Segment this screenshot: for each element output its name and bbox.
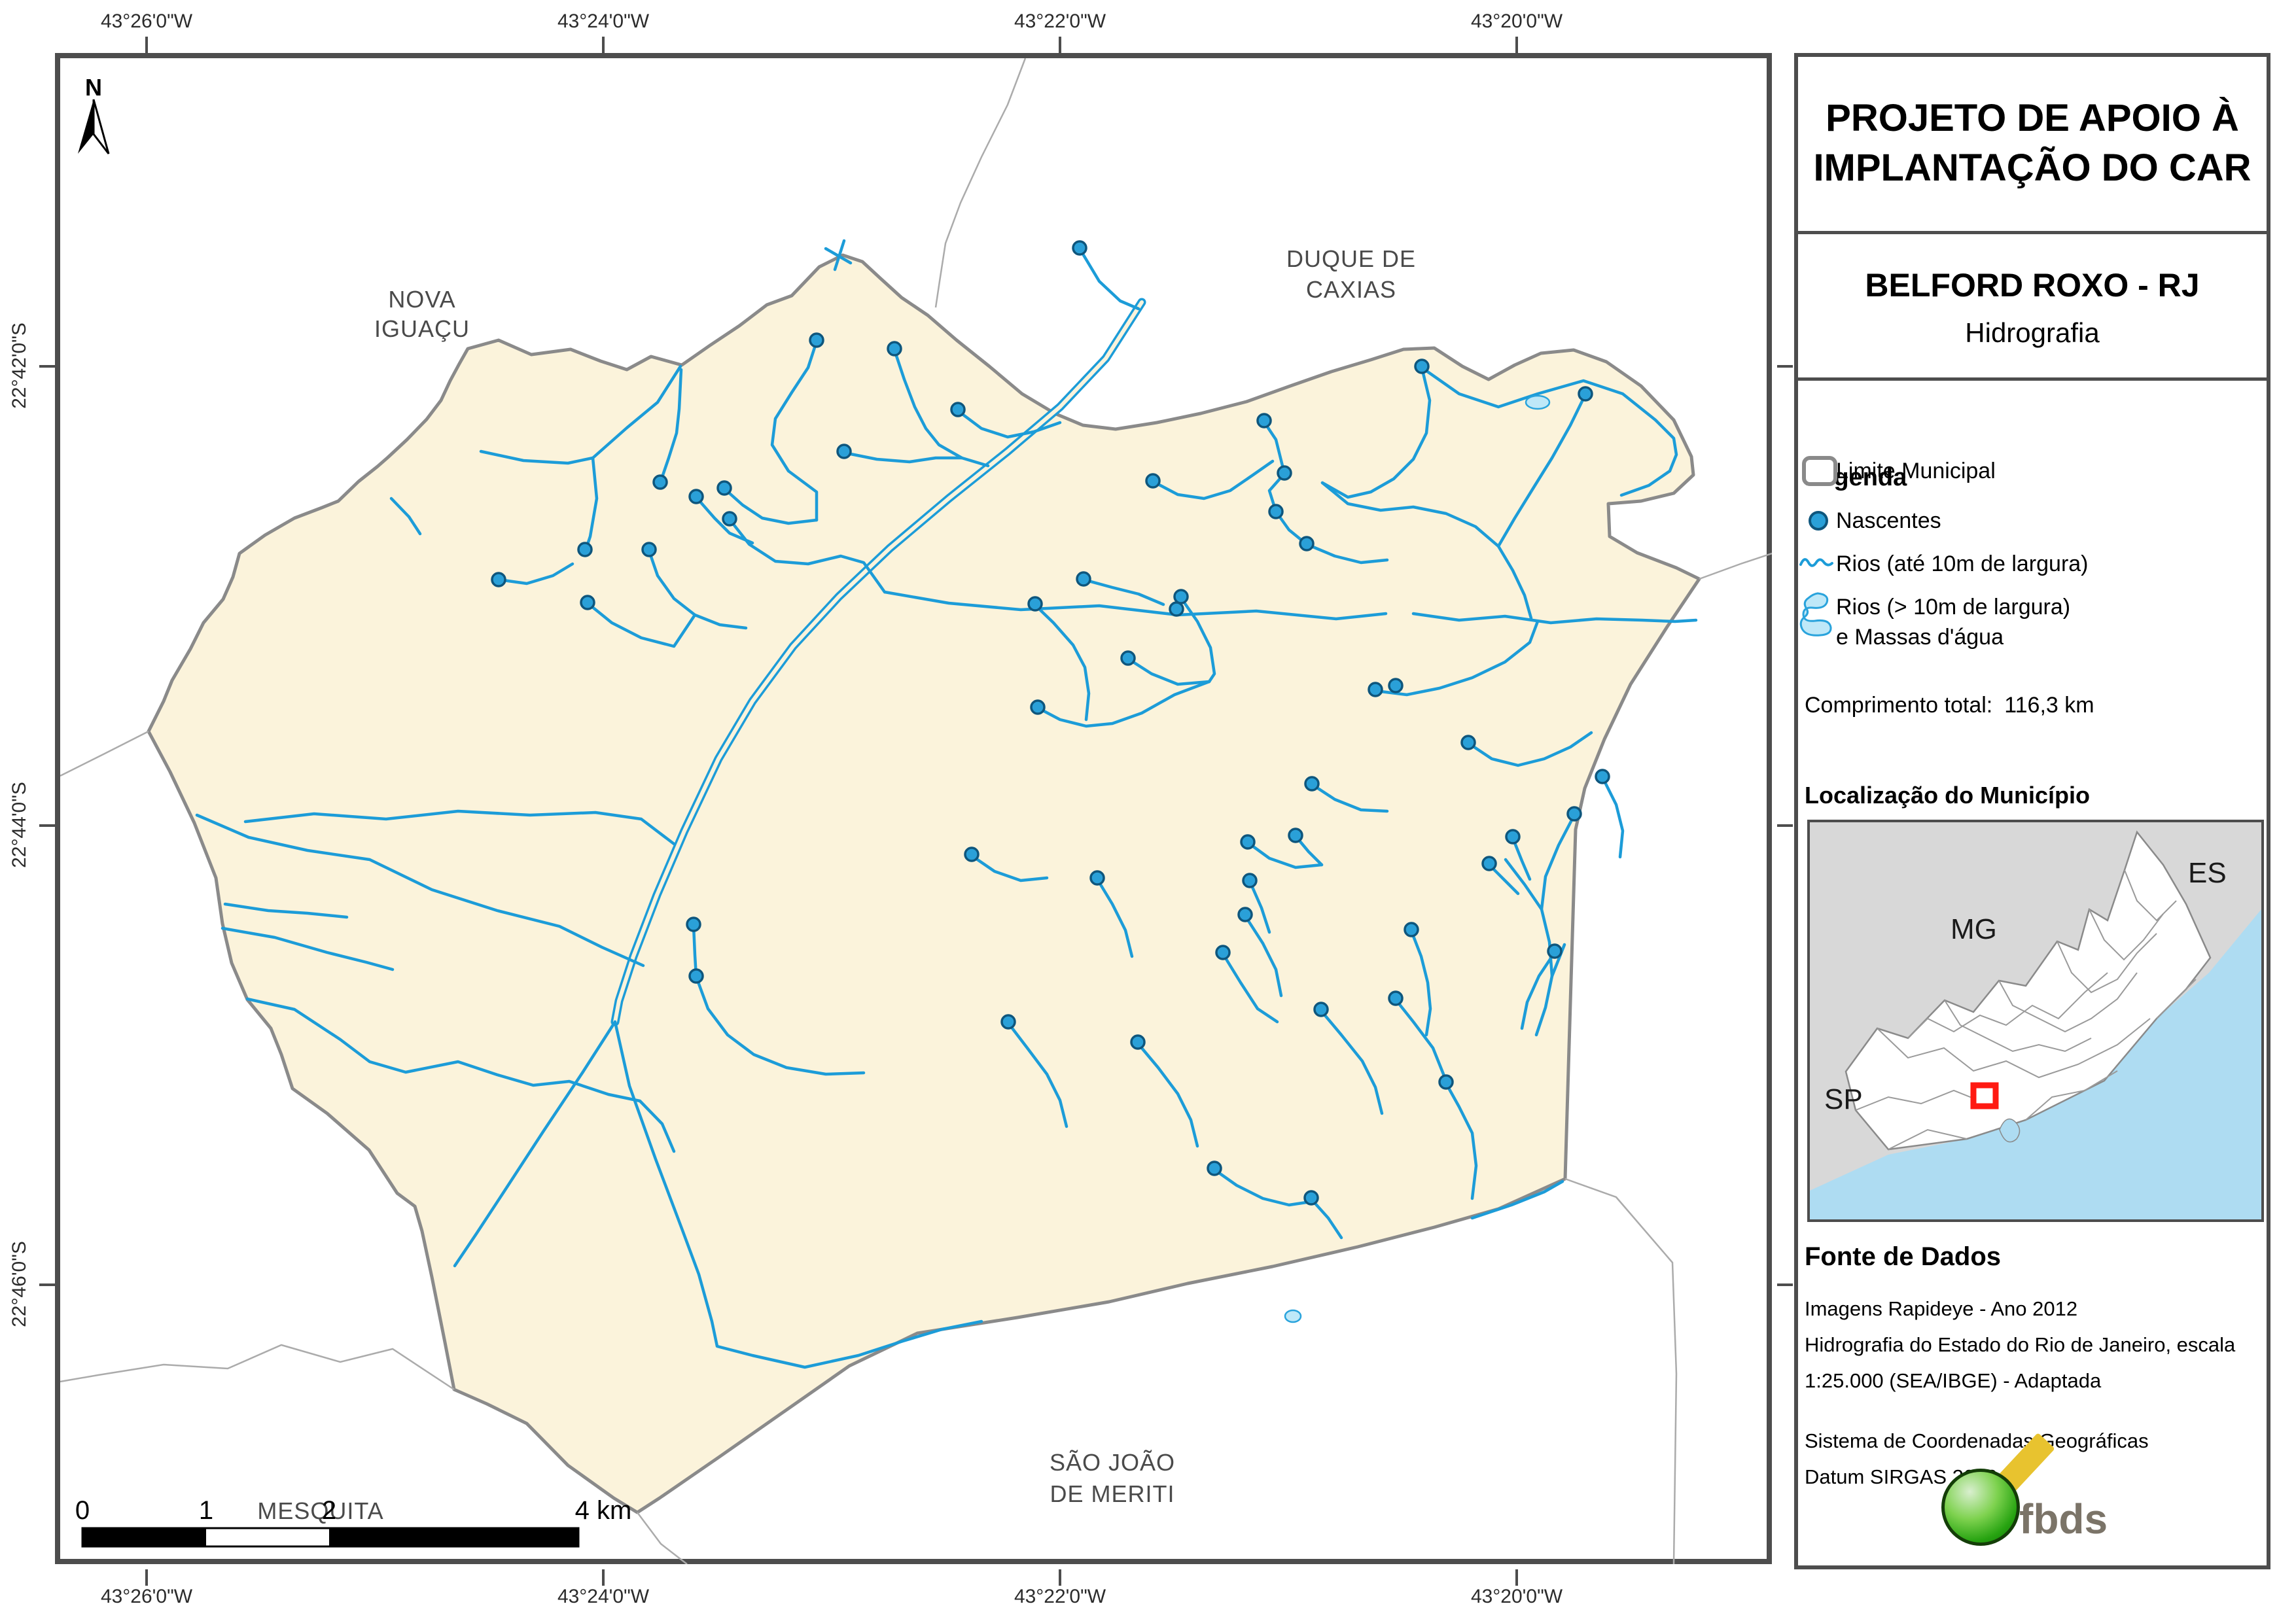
nascente-point [1389, 679, 1402, 692]
north-arrow: N [78, 74, 109, 154]
nascente-point [838, 445, 851, 458]
coord-label: 22°46'0"S [9, 1225, 31, 1343]
coord-label: 43°20'0"W [1471, 10, 1563, 33]
nascente-point [1579, 387, 1592, 400]
nascente-point [1462, 736, 1475, 749]
tick [39, 1283, 55, 1286]
tick [1059, 1569, 1061, 1586]
nascente-point [1315, 1003, 1328, 1016]
nascente-point [1596, 770, 1609, 783]
nascente-point [810, 334, 823, 347]
nascente-point [1031, 701, 1044, 714]
nascente-point [1146, 474, 1159, 487]
inset-label-es: ES [2188, 857, 2227, 889]
nascente-point [723, 512, 736, 525]
tick [602, 37, 605, 53]
label-mesquita: MESQUITA [257, 1497, 383, 1524]
coord-label: 43°24'0"W [557, 1586, 649, 1608]
nascente-point [1002, 1015, 1015, 1028]
nascente-point [1239, 908, 1252, 921]
coord-label: 43°26'0"W [101, 1586, 192, 1608]
nascente-point [1305, 777, 1318, 790]
source-line: 1:25.000 (SEA/IBGE) - Adaptada [1805, 1363, 2235, 1399]
pond [1285, 1310, 1301, 1322]
inset-label-sp: SP [1824, 1083, 1863, 1115]
project-title-line1: PROJETO DE APOIO À [1798, 94, 2267, 143]
nascente-point [1243, 874, 1256, 887]
coord-label: 43°26'0"W [101, 10, 192, 33]
nascente-point [1483, 857, 1496, 870]
main-map-canvas[interactable]: NOVA IGUAÇU DUQUE DE CAXIAS SÃO JOÃO DE … [60, 58, 1772, 1564]
inset-svg: MG ES SP [1810, 822, 2261, 1219]
nascente-point [1289, 829, 1302, 842]
scale-0: 0 [75, 1496, 90, 1525]
nascente-point [1091, 871, 1104, 884]
nascente-point [1405, 923, 1418, 936]
label-sao-joao-2: DE MERITI [1050, 1480, 1174, 1507]
map-theme: Hidrografia [1798, 317, 2267, 349]
source-line: Hidrografia do Estado do Rio de Janeiro,… [1805, 1327, 2235, 1363]
label-duque-1: DUQUE DE [1286, 245, 1416, 272]
nascente-point [1258, 414, 1271, 427]
coord-label: 43°20'0"W [1471, 1586, 1563, 1608]
legend-limite-symbol [1802, 456, 1837, 486]
nascente-point [1506, 830, 1519, 843]
inset-label-mg: MG [1951, 913, 1997, 945]
nascente-point [1548, 945, 1561, 958]
tick [1515, 1569, 1518, 1586]
tick [39, 365, 55, 368]
nascente-point [1241, 835, 1254, 848]
source-heading: Fonte de Dados [1805, 1242, 2001, 1272]
nascente-point [888, 342, 901, 355]
total-length-value: 116,3 km [2004, 693, 2094, 718]
coord-label: 43°22'0"W [1014, 1586, 1106, 1608]
fbds-logo-ball [1941, 1469, 2020, 1546]
location-heading: Localização do Município [1805, 782, 2090, 809]
nascente-point [492, 573, 505, 586]
nascente-point [1369, 683, 1382, 696]
tick [602, 1569, 605, 1586]
legend-nascentes-symbol [1809, 511, 1828, 531]
coord-label: 43°24'0"W [557, 10, 649, 33]
nascente-point [643, 543, 656, 556]
source-block-1: Imagens Rapideye - Ano 2012 Hidrografia … [1805, 1291, 2235, 1399]
nascente-point [690, 490, 703, 503]
tick [1777, 1283, 1793, 1286]
legend-massas-symbol [1798, 591, 1836, 638]
nascente-point [1170, 602, 1183, 616]
tick [39, 824, 55, 827]
municipality-name: BELFORD ROXO - RJ [1798, 266, 2267, 304]
label-nova-iguacu-2: IGUAÇU [374, 315, 470, 342]
coord-label: 43°22'0"W [1014, 10, 1106, 33]
nascente-point [578, 543, 592, 556]
total-length: Comprimento total:116,3 km [1805, 693, 2094, 718]
nascente-point [1415, 360, 1428, 373]
label-sao-joao-1: SÃO JOÃO [1050, 1449, 1175, 1476]
nascente-point [718, 481, 731, 495]
label-duque-2: CAXIAS [1306, 276, 1396, 303]
legend-item-limite: Limite Municipal [1836, 459, 1996, 484]
nascente-point [1029, 597, 1042, 610]
map-document-page: NOVA IGUAÇU DUQUE DE CAXIAS SÃO JOÃO DE … [0, 0, 2296, 1623]
municipality-polygon [149, 255, 1699, 1512]
nascente-point [1174, 590, 1188, 603]
nascente-point [690, 969, 703, 983]
tick [1777, 365, 1793, 368]
nascente-point [951, 403, 964, 416]
location-inset-map[interactable]: MG ES SP [1807, 820, 2264, 1222]
nascente-point [1122, 652, 1135, 665]
nascente-point [1305, 1191, 1318, 1204]
nascente-point [1131, 1036, 1144, 1049]
nascente-point [1208, 1162, 1221, 1175]
nascente-point [965, 848, 978, 861]
north-letter: N [85, 74, 102, 101]
nascente-point [581, 596, 594, 609]
legend-item-rios-largos-1: Rios (> 10m de largura) [1836, 595, 2070, 620]
legend-item-nascentes: Nascentes [1836, 508, 1941, 534]
project-title-line2: IMPLANTAÇÃO DO CAR [1798, 143, 2267, 193]
nascente-point [1269, 505, 1282, 518]
label-nova-iguacu-1: NOVA [388, 286, 455, 313]
nascente-point [687, 918, 700, 931]
pond [1526, 396, 1549, 409]
panel-divider [1798, 377, 2267, 381]
coord-label: 22°44'0"S [9, 766, 31, 884]
nascente-point [1216, 946, 1229, 959]
tick [145, 37, 148, 53]
nascente-point [1073, 241, 1086, 254]
panel-divider [1798, 231, 2267, 234]
scale-1: 1 [199, 1496, 213, 1525]
tick [145, 1569, 148, 1586]
project-title: PROJETO DE APOIO À IMPLANTAÇÃO DO CAR [1798, 94, 2267, 193]
info-panel: PROJETO DE APOIO À IMPLANTAÇÃO DO CAR BE… [1794, 53, 2270, 1569]
nascente-point [1439, 1075, 1453, 1089]
scale-4km: 4 km [575, 1496, 632, 1525]
source-line: Imagens Rapideye - Ano 2012 [1805, 1291, 2235, 1327]
total-length-label: Comprimento total: [1805, 693, 1992, 718]
legend-item-rios-largos-2: e Massas d'água [1836, 625, 2004, 650]
tick [1777, 824, 1793, 827]
nascente-point [1077, 572, 1090, 585]
nascente-point [1568, 807, 1581, 820]
coord-label: 22°42'0"S [9, 307, 31, 425]
legend-item-rios: Rios (até 10m de largura) [1836, 551, 2089, 577]
nascente-point [654, 476, 667, 489]
tick [1515, 37, 1518, 53]
municipality-marker [1973, 1085, 1996, 1106]
nascente-point [1389, 992, 1402, 1005]
scale-2: 2 [322, 1496, 336, 1525]
tick [1059, 37, 1061, 53]
fbds-logo-text: fbds [2019, 1495, 2108, 1543]
legend-rios-symbol [1799, 551, 1833, 575]
nascente-point [1278, 466, 1291, 480]
source-line: Sistema de Coordenadas Geográficas [1805, 1423, 2149, 1459]
nascente-point [1300, 537, 1313, 550]
